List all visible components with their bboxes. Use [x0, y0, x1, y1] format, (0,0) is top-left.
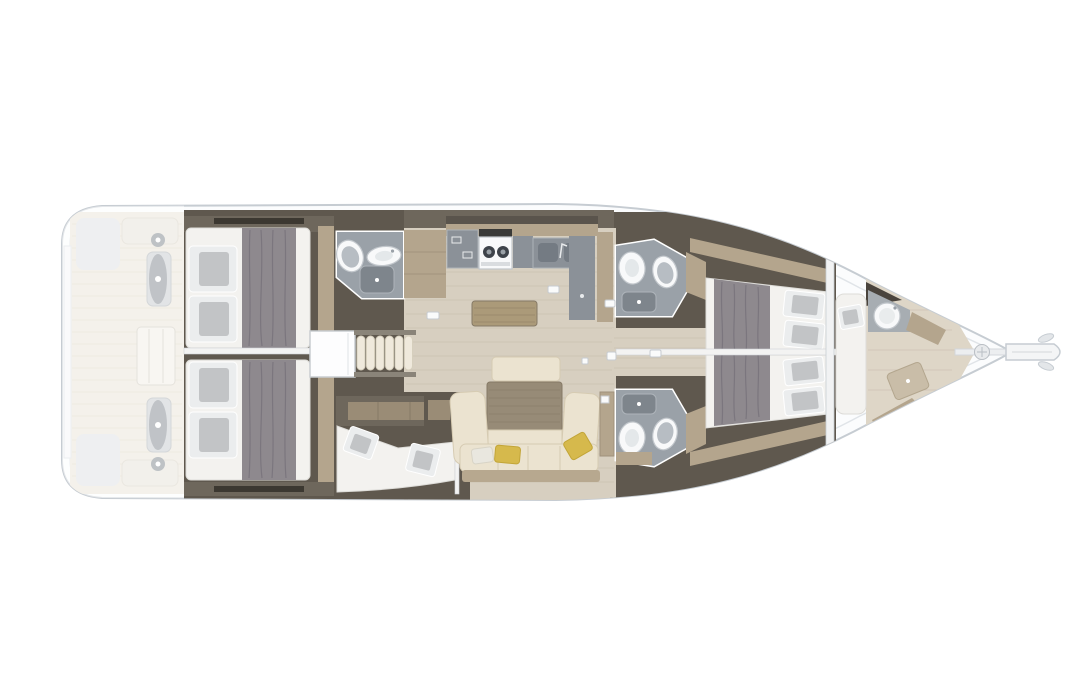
crew-sink-bowl: [879, 308, 895, 324]
burner-center: [487, 250, 492, 255]
ghost-overlay: [62, 202, 184, 504]
oven-handle: [481, 262, 510, 266]
counter-knob: [580, 294, 584, 298]
pillow-cushion: [199, 252, 229, 286]
step-rail-bottom: [354, 372, 416, 377]
aft-stbd-hull-window: [214, 486, 304, 492]
cockpit-ghosted: [62, 202, 184, 504]
sofa-backrest: [488, 430, 562, 445]
companionway: [310, 330, 416, 377]
step: [395, 336, 403, 370]
aft-port-shelf: [318, 226, 334, 348]
step-rail-top: [354, 330, 416, 335]
throw-pillow-white: [471, 447, 494, 465]
bow-cleat: [1037, 360, 1054, 372]
burner-center: [501, 250, 506, 255]
pillow-cushion: [791, 295, 819, 316]
aft-port-hull-window: [214, 218, 304, 224]
vanity-counter: [616, 452, 652, 465]
shower-drain: [637, 300, 641, 304]
aft-cabin-divider: [184, 348, 312, 354]
floorplan-svg: [0, 0, 1090, 700]
pillow-cushion: [842, 309, 859, 325]
pillow-cushion: [199, 368, 229, 402]
aft-stbd-shelf: [318, 360, 334, 482]
deck-hatch: [650, 350, 661, 357]
galley-sink: [538, 243, 558, 262]
yacht-floorplan-page: [0, 0, 1090, 700]
bow-cleat: [1037, 332, 1054, 344]
throw-pillow-yellow: [494, 445, 520, 464]
floor-hatch: [548, 286, 559, 293]
floor-hatch: [427, 312, 439, 319]
pillow-cushion: [791, 325, 819, 346]
deck-hatch: [582, 358, 588, 364]
step: [376, 336, 384, 370]
sofa-back-bench: [492, 357, 560, 381]
pillow-cushion: [791, 361, 819, 382]
switch-panel: [601, 396, 609, 403]
l-counter: [569, 236, 595, 320]
shower-drain: [637, 402, 641, 406]
faucet: [893, 306, 896, 309]
fwd-bulkhead: [826, 252, 834, 454]
pillow-cushion: [199, 302, 229, 336]
galley-hull-edge: [446, 216, 598, 224]
fwd-cabin-divider: [616, 349, 836, 355]
fridge: [447, 230, 478, 268]
step: [367, 336, 375, 370]
step: [386, 336, 394, 370]
sofa-plinth: [462, 470, 600, 482]
shower-drain: [375, 278, 379, 282]
stove-backsplash: [479, 229, 512, 237]
step: [405, 336, 413, 370]
counter-strip: [513, 236, 533, 268]
berth-foot-shelf: [428, 400, 450, 420]
pillow-cushion: [199, 418, 229, 452]
floor-hatch: [605, 300, 615, 307]
step: [357, 336, 365, 370]
pillow-cushion: [791, 391, 819, 412]
galley-end-cabinet: [597, 232, 613, 322]
deck-hatch: [607, 352, 616, 360]
galley-cabinet-column: [404, 230, 446, 298]
